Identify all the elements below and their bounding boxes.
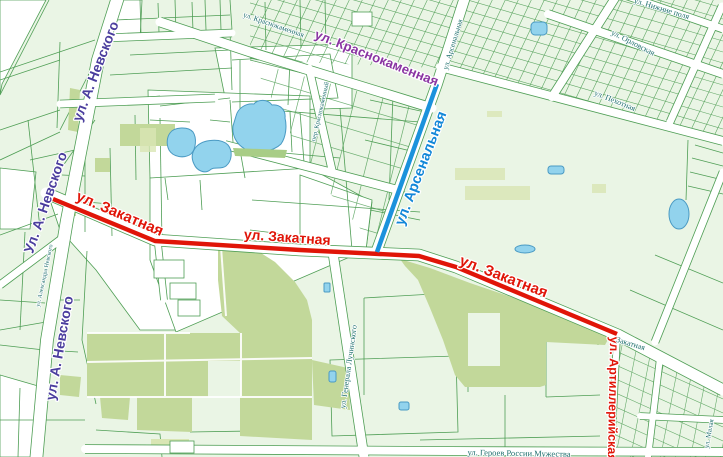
svg-text:ул. Артиллерийская: ул. Артиллерийская xyxy=(605,336,621,457)
svg-text:ул. Героев России Мужества: ул. Героев России Мужества xyxy=(467,447,570,457)
